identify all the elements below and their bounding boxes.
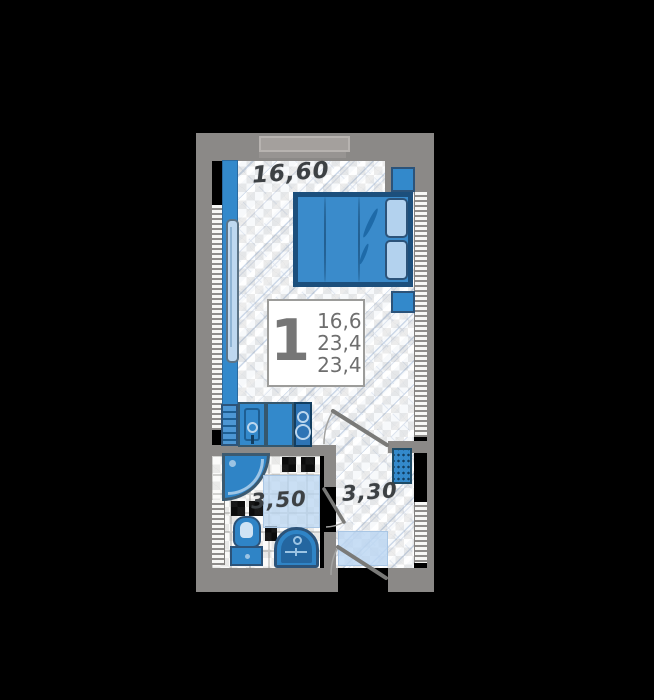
- sink-tap: [251, 435, 254, 444]
- kitchen-unit: [221, 402, 312, 447]
- total-area-value: 23,4: [317, 332, 362, 354]
- window-leaf: [226, 219, 239, 363]
- pillow: [385, 240, 408, 280]
- wall-hatch-right-upper: [414, 192, 428, 437]
- area-values: 16,6 23,4 23,4: [317, 310, 362, 376]
- bathroom-area-label: 3,50: [250, 487, 307, 514]
- kitchen-stove: [294, 402, 312, 447]
- wall-bottom-right: [388, 568, 434, 592]
- dark-tile: [301, 457, 315, 472]
- kitchen-drainboard: [221, 404, 238, 446]
- dark-tile: [231, 501, 245, 516]
- kitchen-sink: [238, 402, 266, 447]
- hall-area-label: 3,30: [341, 478, 398, 506]
- nightstand-top: [391, 167, 415, 192]
- dark-tile: [282, 457, 296, 472]
- living-area-value: 16,6: [317, 310, 362, 332]
- stove-burner-small: [297, 411, 309, 423]
- toilet-bowl-opening: [240, 522, 253, 538]
- blanket-crease: [362, 207, 380, 238]
- toilet-flush-button: [245, 554, 250, 559]
- window: [222, 160, 238, 431]
- washbasin: [274, 527, 319, 568]
- wall-hatch-left-lower: [211, 500, 225, 565]
- blanket-crease: [358, 243, 369, 265]
- wall-left: [196, 133, 212, 592]
- entry-doormat: [338, 531, 388, 566]
- top-wall-niche-shadow: [259, 152, 346, 158]
- blanket-fold: [324, 197, 326, 282]
- washbasin-drain: [293, 536, 302, 545]
- blanket-fold: [358, 197, 360, 282]
- total-area-value-2: 23,4: [317, 354, 362, 376]
- pillow: [385, 198, 408, 238]
- stove-burner-large: [295, 424, 311, 440]
- floor-plan: 16,60 3,50 3,30 1 16,6 23,4 23,4: [196, 133, 434, 592]
- wall-bathroom-right-upper: [324, 445, 336, 487]
- top-wall-niche: [259, 136, 350, 152]
- shower-drain: [229, 460, 236, 467]
- toilet-tank: [230, 546, 263, 566]
- room-area-label: 16,60: [251, 157, 330, 188]
- wall-right: [427, 133, 434, 592]
- room-count: 1: [270, 313, 310, 370]
- apartment-summary-box: 1 16,6 23,4 23,4: [267, 299, 365, 387]
- nightstand-bottom: [391, 291, 415, 313]
- wall-hatch-right-lower: [414, 502, 428, 563]
- washbasin-tap-spout: [295, 548, 297, 556]
- kitchen-counter: [266, 402, 294, 447]
- wall-bathroom-right-lower: [324, 532, 336, 568]
- wall-bottom-left: [196, 568, 338, 592]
- screenshot-background: 16,60 3,50 3,30 1 16,6 23,4 23,4: [0, 0, 654, 700]
- sink-drain: [247, 422, 258, 433]
- toilet: [233, 516, 261, 548]
